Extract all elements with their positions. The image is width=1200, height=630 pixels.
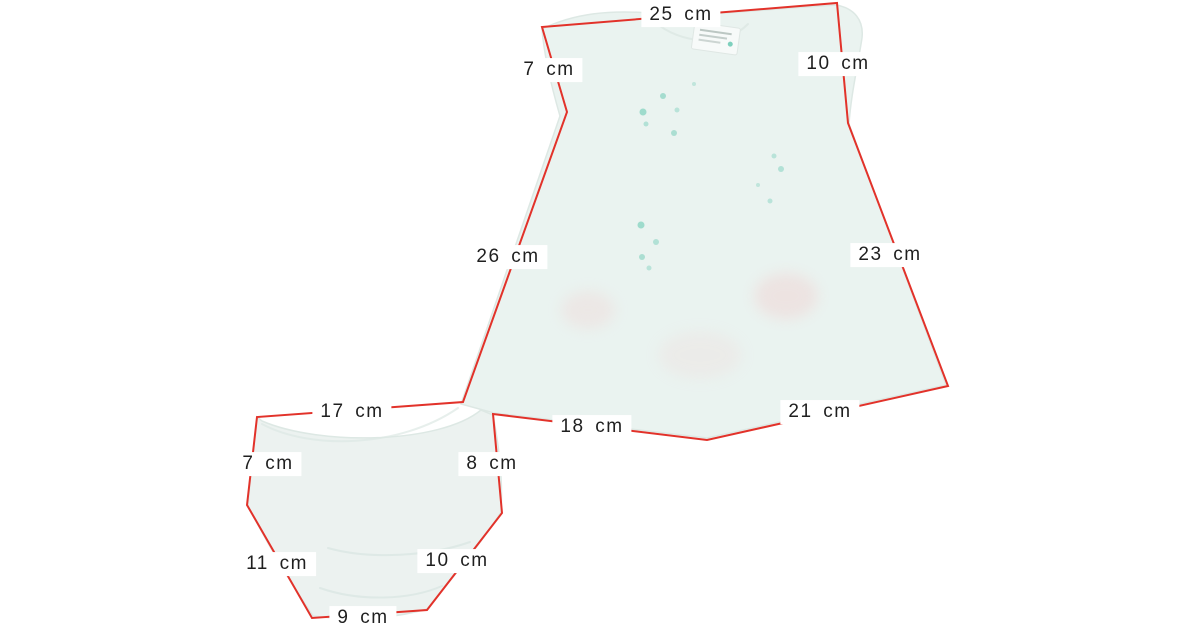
label-bloomers-waist-width: 17 cm [312, 400, 391, 424]
label-dress-right-sleeve: 10 cm [798, 52, 877, 76]
label-bloomers-right-side: 8 cm [458, 452, 525, 476]
label-dress-hem-left: 18 cm [552, 415, 631, 439]
label-dress-left-sleeve: 7 cm [515, 58, 582, 82]
label-dress-shoulder-width: 25 cm [641, 3, 720, 27]
label-dress-hem-right: 21 cm [780, 400, 859, 424]
label-dress-right-side: 23 cm [850, 243, 929, 267]
label-dress-left-side: 26 cm [468, 245, 547, 269]
label-bloomers-bottom-width: 9 cm [329, 606, 396, 630]
label-bloomers-right-leg: 10 cm [417, 549, 496, 573]
care-label-tag [691, 22, 740, 55]
label-bloomers-left-leg: 11 cm [238, 552, 316, 576]
bloomers-photo [248, 410, 502, 619]
label-bloomers-left-side: 7 cm [234, 452, 301, 476]
garment-measurement-diagram: 25 cm7 cm10 cm26 cm23 cm18 cm21 cm17 cm7… [0, 0, 1200, 630]
diagram-graphics [0, 0, 1200, 630]
